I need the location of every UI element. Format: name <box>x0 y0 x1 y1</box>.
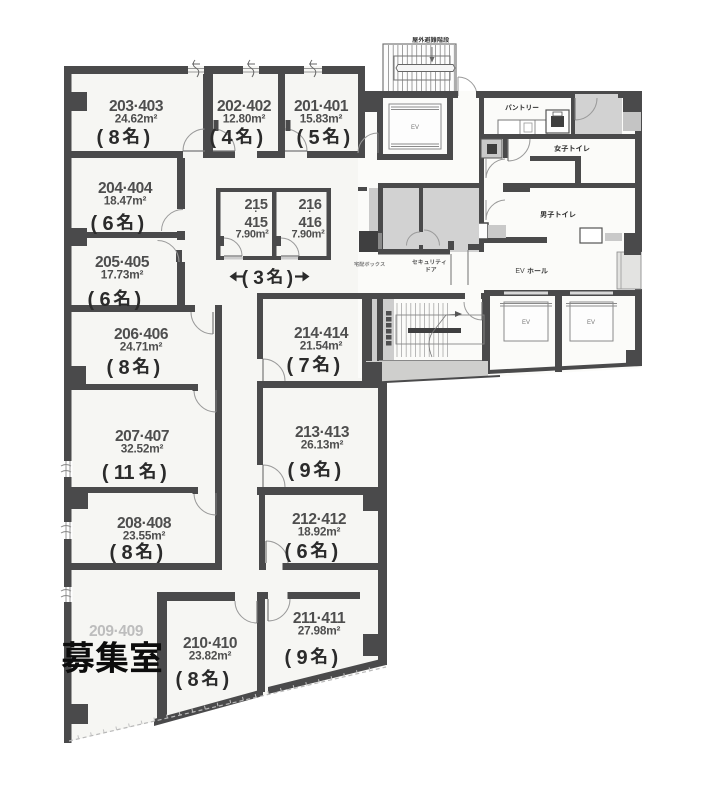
svg-text:7.90m²: 7.90m² <box>235 229 269 241</box>
svg-text:18.92m²: 18.92m² <box>298 525 341 539</box>
svg-text:EV: EV <box>522 320 530 326</box>
svg-text:(: ( <box>175 669 182 691</box>
svg-text:209·409: 209·409 <box>89 623 144 640</box>
svg-text:(: ( <box>87 289 94 311</box>
svg-text:23.55m²: 23.55m² <box>123 529 166 543</box>
svg-text:8: 8 <box>118 357 129 379</box>
svg-text:9: 9 <box>296 647 307 669</box>
svg-text:): ) <box>332 541 339 563</box>
svg-text:(: ( <box>296 127 303 149</box>
svg-text:): ) <box>157 542 164 564</box>
svg-text:EV: EV <box>515 268 525 275</box>
svg-text:(: ( <box>287 460 294 482</box>
svg-text:12.80m²: 12.80m² <box>223 112 266 126</box>
svg-text:): ) <box>344 127 351 149</box>
svg-text:): ) <box>138 213 145 235</box>
svg-text:EV: EV <box>587 320 595 326</box>
svg-text:): ) <box>144 127 151 149</box>
svg-text:32.52m²: 32.52m² <box>121 442 164 456</box>
svg-text:5: 5 <box>308 127 319 149</box>
svg-text:): ) <box>160 462 167 484</box>
svg-text:(: ( <box>96 127 103 149</box>
svg-text:8: 8 <box>108 127 119 149</box>
svg-text:): ) <box>287 268 293 289</box>
svg-text:17.73m²: 17.73m² <box>101 268 144 282</box>
svg-text:8: 8 <box>187 669 198 691</box>
svg-text:11: 11 <box>114 462 135 484</box>
svg-text:24.62m²: 24.62m² <box>115 112 158 126</box>
svg-text:(: ( <box>209 127 216 149</box>
svg-text:): ) <box>154 357 161 379</box>
svg-text:(: ( <box>106 357 113 379</box>
svg-text:): ) <box>257 127 264 149</box>
svg-text:EV: EV <box>411 125 419 131</box>
svg-text:27.98m²: 27.98m² <box>298 624 341 638</box>
svg-text:): ) <box>223 669 230 691</box>
svg-text:8: 8 <box>121 542 132 564</box>
svg-text:(: ( <box>90 213 97 235</box>
svg-text:9: 9 <box>299 460 310 482</box>
svg-text:4: 4 <box>221 127 233 149</box>
svg-text:): ) <box>332 647 339 669</box>
svg-text:(: ( <box>242 268 249 289</box>
svg-text:(: ( <box>109 542 116 564</box>
svg-text:3: 3 <box>253 268 263 289</box>
svg-text:6: 6 <box>102 213 113 235</box>
svg-text:21.54m²: 21.54m² <box>300 339 343 353</box>
svg-text:23.82m²: 23.82m² <box>189 649 232 663</box>
svg-text:7.90m²: 7.90m² <box>291 229 325 241</box>
svg-text:7: 7 <box>298 355 309 377</box>
svg-text:(: ( <box>286 355 293 377</box>
svg-text:(: ( <box>284 541 291 563</box>
svg-text:18.47m²: 18.47m² <box>104 194 147 208</box>
svg-text:6: 6 <box>99 289 110 311</box>
svg-text:26.13m²: 26.13m² <box>301 438 344 452</box>
svg-text:(: ( <box>102 462 109 484</box>
svg-text:): ) <box>135 289 142 311</box>
svg-text:(: ( <box>284 647 291 669</box>
svg-text:6: 6 <box>296 541 307 563</box>
svg-text:): ) <box>335 460 342 482</box>
svg-text:24.71m²: 24.71m² <box>120 340 163 354</box>
svg-text:): ) <box>334 355 341 377</box>
svg-text:15.83m²: 15.83m² <box>300 112 343 126</box>
